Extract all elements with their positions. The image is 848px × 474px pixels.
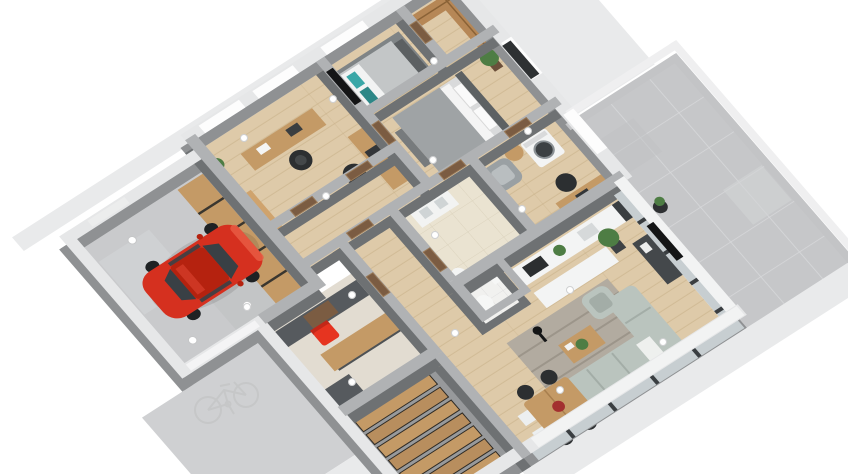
floorplan-render <box>0 0 848 474</box>
floorplan-canvas <box>0 0 848 474</box>
